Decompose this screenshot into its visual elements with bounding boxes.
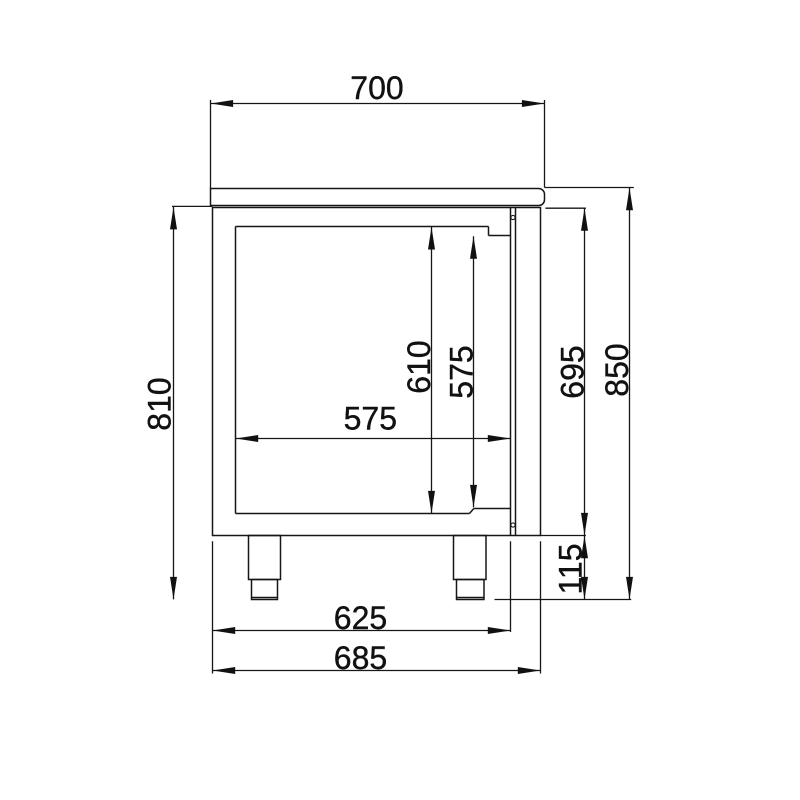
svg-text:850: 850 [599, 343, 635, 396]
svg-text:810: 810 [142, 377, 178, 430]
svg-text:575: 575 [344, 401, 397, 437]
svg-text:625: 625 [334, 600, 387, 636]
svg-text:575: 575 [443, 345, 479, 398]
svg-text:685: 685 [334, 640, 387, 676]
svg-text:610: 610 [401, 340, 437, 393]
svg-text:700: 700 [350, 70, 403, 106]
svg-text:695: 695 [554, 345, 590, 398]
svg-text:115: 115 [552, 543, 588, 594]
